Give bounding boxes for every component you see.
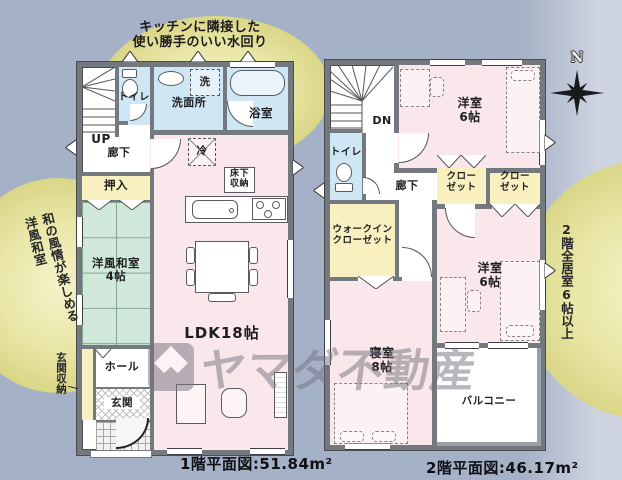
door-arc [402,247,432,277]
label-hall: ホール [100,361,144,374]
window [324,320,331,365]
sliding-door-icon [119,200,145,210]
annotation-right: 2階全居室6帖以上 [557,222,576,352]
chair [186,269,195,286]
floor1-stairs-icon [82,67,115,137]
toilet-bowl-icon [336,163,352,182]
window [430,59,465,66]
vent-icon [240,51,256,62]
coffee-table [221,388,247,418]
label-tatami-room: 洋風和室 4帖 [82,257,150,283]
label-closet-a: クロー ゼット [437,172,486,194]
window [287,240,294,298]
label-toilet: トイレ [115,92,153,104]
dining-table [195,241,249,293]
vent-icon [545,263,556,279]
label-master-bedroom: 寝室 8帖 [358,347,406,375]
annotation-top: キッチンに隣接した 使い勝手のいい水回り [105,21,295,51]
tv-board [274,372,287,418]
vent-icon [293,160,304,176]
closet-door-icon [437,155,486,168]
desk [440,277,466,332]
pillow [372,431,396,442]
window [488,342,528,349]
compass: N [548,50,606,130]
label-closet-b: クロー ゼット [490,172,540,194]
chair [208,293,236,302]
chair [249,269,258,286]
label-bedroom-north: 洋室 6帖 [446,97,494,125]
desk [400,69,430,107]
label-bedroom-south: 洋室 6帖 [466,262,514,290]
label-toilet2: トイレ [330,147,362,159]
toilet-tank-icon [335,183,353,192]
kitchen-drain [229,208,234,213]
vent-icon [190,51,206,62]
pillow [506,325,534,337]
chair [186,247,195,264]
closet-door-icon [490,204,540,217]
label-hallway2: 廊下 [388,180,426,193]
label-up: UP [86,133,116,147]
closet-door-icon [358,276,394,289]
label-washer: 洗 [190,76,220,88]
sofa [176,384,206,424]
label-futon-closet: 押入 [92,179,140,192]
floorplan-image: UP 廊下 トイレ 洗面所 洗 浴室 冷 床下 収納 押入 洋風和室 4帖 LD… [0,0,622,480]
label-fridge: 冷 [188,145,216,157]
floor1-plan: UP 廊下 トイレ 洗面所 洗 浴室 冷 床下 収納 押入 洋風和室 4帖 LD… [77,62,293,455]
closet-door-icon [95,349,111,358]
label-washroom: 洗面所 [158,97,220,110]
label-floor-storage: 床下 収納 [224,169,255,190]
stove [252,198,286,220]
compass-n-label: N [548,50,606,66]
floor2-plan: DN トイレ 廊下 洋室 6帖 クロー ゼット クロー ゼット ウォークイン ク… [325,60,545,450]
compass-star-icon [548,66,606,120]
vent-icon [545,135,556,151]
floor2-caption: 2階平面図:46.17m² [426,457,579,478]
toilet-tank-icon [122,69,137,78]
window [345,443,390,450]
sliding-door-icon [86,200,112,210]
window [230,61,275,68]
sink-icon [158,71,184,86]
vent-icon [122,51,138,62]
window [445,342,479,349]
label-down: DN [368,115,396,128]
pillow [511,70,535,81]
label-ldk: LDK18帖 [160,325,284,342]
bathtub-icon [230,70,285,96]
chair [249,247,258,264]
chair [430,77,444,97]
label-entrance: 玄関 [104,397,140,409]
window [76,217,83,247]
floor1-caption: 1階平面図:51.84m² [180,453,333,474]
label-balcony: バルコニー [452,395,526,407]
floor1-entrance-storage [82,349,93,420]
porch-step [90,450,152,458]
door-arc [363,177,380,194]
chair [467,290,481,312]
label-entrance-storage: 玄関収納 [54,352,69,414]
pillow [340,431,364,442]
window [482,59,522,66]
vent-icon [314,183,325,199]
label-bath: 浴室 [240,107,282,120]
vent-icon [66,140,77,156]
label-walk-in-closet: ウォークイン クローゼット [331,225,394,247]
label-hallway: 廊下 [100,147,138,160]
